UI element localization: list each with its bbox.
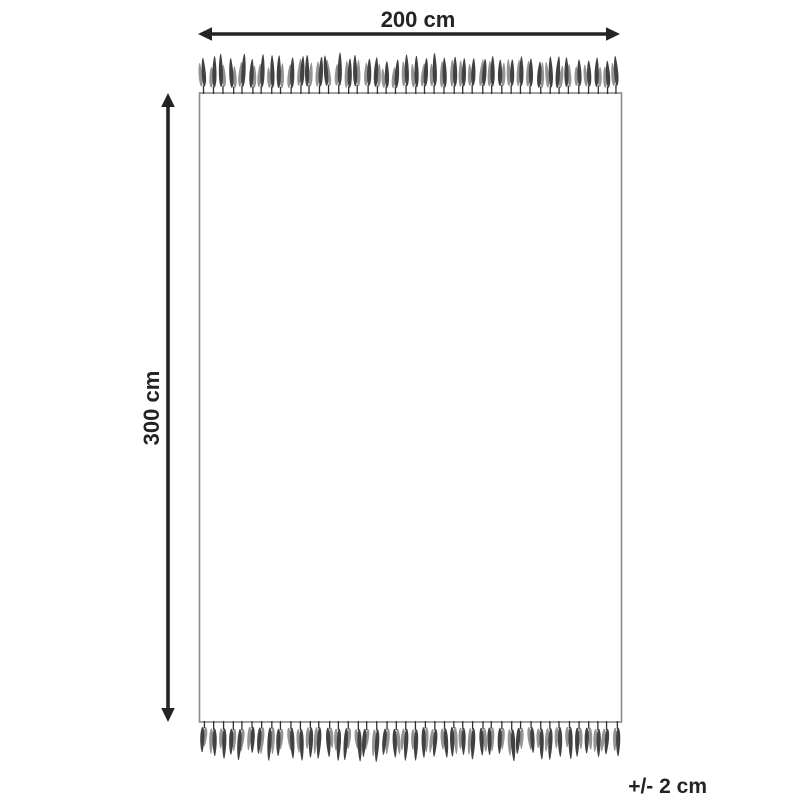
tolerance-label: +/- 2 cm [628, 776, 707, 797]
height-dimension-label: 300 cm [141, 298, 163, 518]
width-dimension-label: 200 cm [198, 9, 638, 31]
rug-outline [200, 93, 622, 722]
rug-dimension-diagram: 200 cm 300 cm +/- 2 cm [0, 0, 800, 800]
diagram-graphics [0, 0, 800, 800]
bottom-fringe [200, 721, 620, 762]
top-fringe [199, 53, 619, 94]
